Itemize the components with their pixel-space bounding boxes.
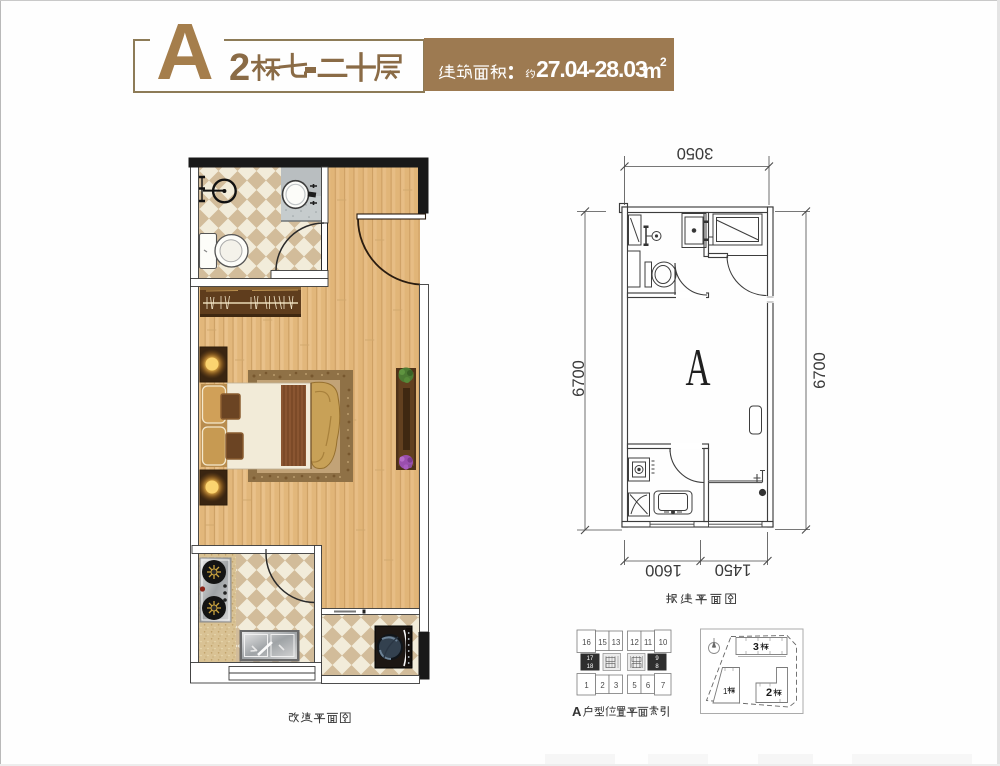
svg-text:2: 2 xyxy=(600,681,604,690)
svg-text:3: 3 xyxy=(753,641,759,653)
svg-text:3050: 3050 xyxy=(677,144,714,162)
svg-text:1600: 1600 xyxy=(645,561,682,579)
svg-text:6700: 6700 xyxy=(570,360,588,397)
svg-text:12: 12 xyxy=(630,638,639,647)
svg-text:10: 10 xyxy=(659,638,668,647)
svg-text:6: 6 xyxy=(646,681,650,690)
svg-text:7: 7 xyxy=(661,681,665,690)
svg-text:A: A xyxy=(686,339,711,397)
svg-text:18: 18 xyxy=(587,664,594,670)
svg-text:5: 5 xyxy=(632,681,637,690)
svg-text:3: 3 xyxy=(614,681,618,690)
svg-text:2: 2 xyxy=(766,687,772,699)
svg-text:11: 11 xyxy=(644,638,652,647)
svg-text:15: 15 xyxy=(598,638,607,647)
svg-text:13: 13 xyxy=(612,638,621,647)
svg-text:1: 1 xyxy=(584,681,588,690)
svg-text:1450: 1450 xyxy=(715,561,752,579)
svg-text:6700: 6700 xyxy=(811,352,829,389)
svg-text:17: 17 xyxy=(587,656,594,662)
svg-text:16: 16 xyxy=(582,638,591,647)
